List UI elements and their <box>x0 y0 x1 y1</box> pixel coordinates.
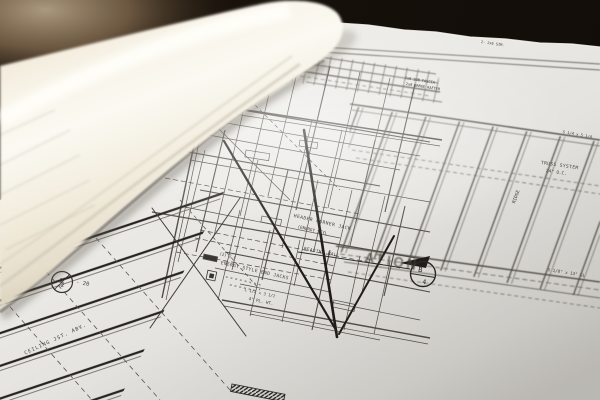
blueprint-linework-svg: B 4 ½ · 20 <box>0 0 600 400</box>
blueprint-photo: B 4 ½ · 20 <box>0 0 600 400</box>
